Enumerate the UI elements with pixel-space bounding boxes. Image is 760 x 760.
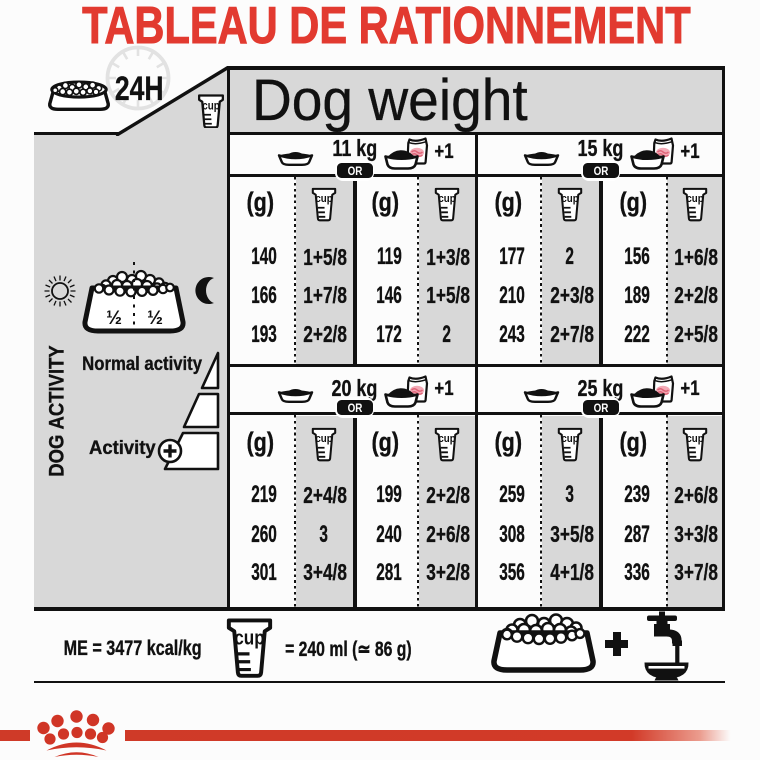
svg-text:cup: cup <box>315 432 333 445</box>
svg-text:cup: cup <box>438 432 456 445</box>
svg-text:cup: cup <box>686 192 704 205</box>
svg-text:cup: cup <box>686 432 704 445</box>
svg-text:cup: cup <box>234 626 264 649</box>
svg-text:cup: cup <box>561 192 579 205</box>
svg-text:cup: cup <box>315 192 333 205</box>
svg-text:cup: cup <box>438 192 456 205</box>
svg-text:cup: cup <box>202 100 220 113</box>
svg-text:½: ½ <box>147 308 163 329</box>
svg-text:cup: cup <box>561 432 579 445</box>
svg-text:½: ½ <box>106 308 122 329</box>
